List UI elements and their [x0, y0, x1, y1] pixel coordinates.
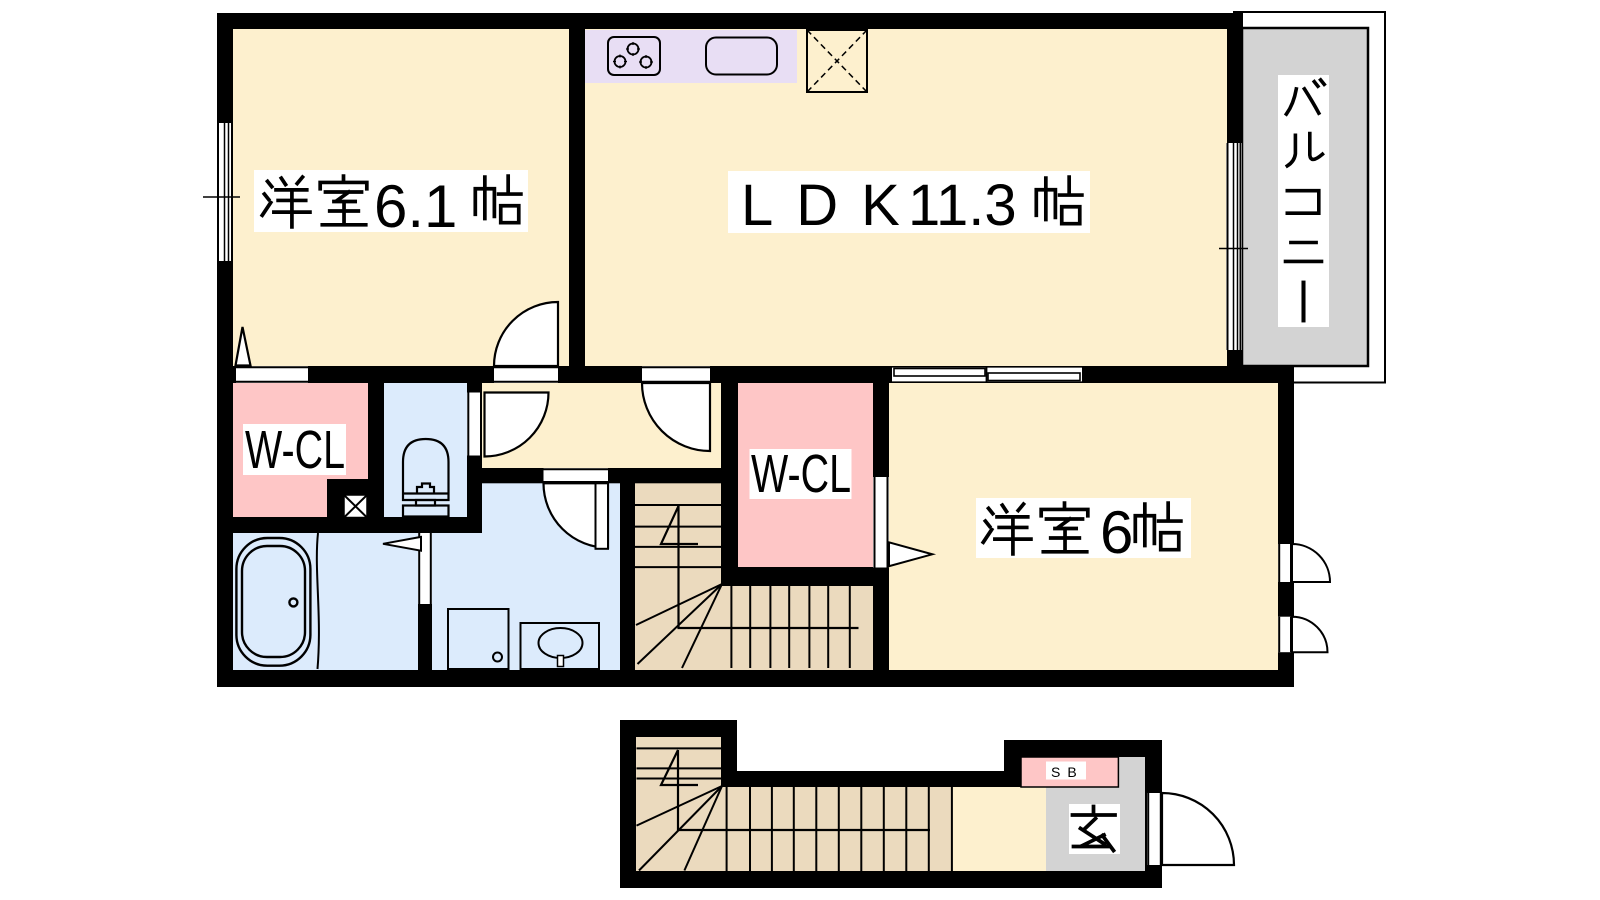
svg-text:W-CL: W-CL: [751, 444, 851, 504]
svg-text:LDK: LDK: [741, 173, 923, 238]
svg-text:6.1: 6.1: [374, 173, 457, 240]
svg-text:W-CL: W-CL: [245, 420, 345, 480]
svg-text:11.3: 11.3: [908, 173, 1017, 238]
svg-text:SB: SB: [1051, 764, 1084, 780]
svg-text:6: 6: [1100, 499, 1133, 566]
